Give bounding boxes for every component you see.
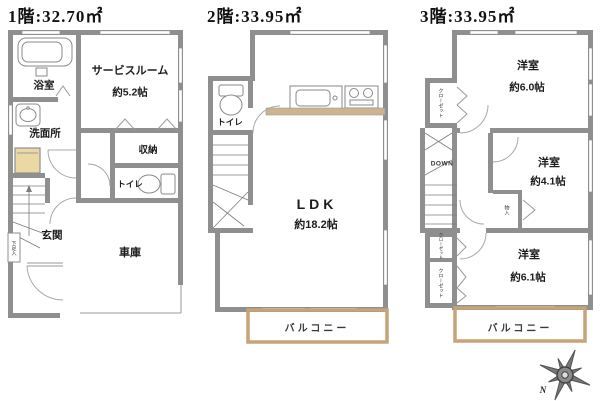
floor2-plan <box>208 30 388 342</box>
laundry-pan <box>15 148 40 173</box>
label-balcony-floor3: バルコニー <box>488 320 553 335</box>
label-closet-top: クローゼット <box>438 88 445 118</box>
toilet-icon-floor1 <box>138 174 175 194</box>
label-bedroom3-size: 約6.1帖 <box>510 270 546 285</box>
entrance-door <box>27 263 63 300</box>
bathtub-icon <box>18 38 72 76</box>
label-bedroom2: 洋室 <box>538 154 560 170</box>
label-storage: 収納 <box>138 142 157 156</box>
label-stairs-down: DOWN <box>431 161 454 168</box>
label-bedroom1-size: 約6.0帖 <box>509 80 545 95</box>
floor3-plan <box>420 30 593 341</box>
kitchen-counter <box>266 108 385 115</box>
label-washroom: 洗面所 <box>29 126 61 141</box>
floor-plan-image: 1階:32.70㎡ 2階:33.95㎡ 3階:33.95㎡ 浴室 サービスルーム… <box>0 0 600 401</box>
floor3-title: 3階:33.95㎡ <box>420 2 515 27</box>
label-bedroom1: 洋室 <box>517 57 539 73</box>
toilet-icon-floor2 <box>219 85 243 115</box>
washbasin-icon <box>16 104 40 126</box>
stairs-floor2 <box>213 145 248 228</box>
kitchen-icon <box>266 86 385 115</box>
label-toilet-floor2: トイレ <box>217 116 243 128</box>
label-service-room-size: 約5.2帖 <box>112 85 148 100</box>
label-entrance: 玄関 <box>42 228 63 243</box>
label-storage-small: 物入 <box>504 205 511 215</box>
label-bath: 浴室 <box>34 78 55 93</box>
label-bedroom2-size: 約4.1帖 <box>530 174 566 189</box>
label-service-room: サービスルーム <box>92 62 169 78</box>
floor1-title: 1階:32.70㎡ <box>8 2 103 27</box>
compass-north-label: N <box>540 385 547 395</box>
label-ldk-size: 約18.2帖 <box>294 216 337 232</box>
label-toilet-floor1: トイレ <box>117 178 143 190</box>
label-garage: 車庫 <box>119 244 141 260</box>
label-closet-mid: クローゼット <box>438 233 444 260</box>
label-ldk: LDK <box>297 196 338 212</box>
label-balcony-floor2: バルコニー <box>285 320 350 335</box>
floor2-title: 2階:33.95㎡ <box>207 2 302 27</box>
label-closet-bottom: クローゼット <box>438 268 445 298</box>
label-shoe-cabinet: 下足入 <box>11 241 18 256</box>
label-bedroom3: 洋室 <box>518 246 540 262</box>
